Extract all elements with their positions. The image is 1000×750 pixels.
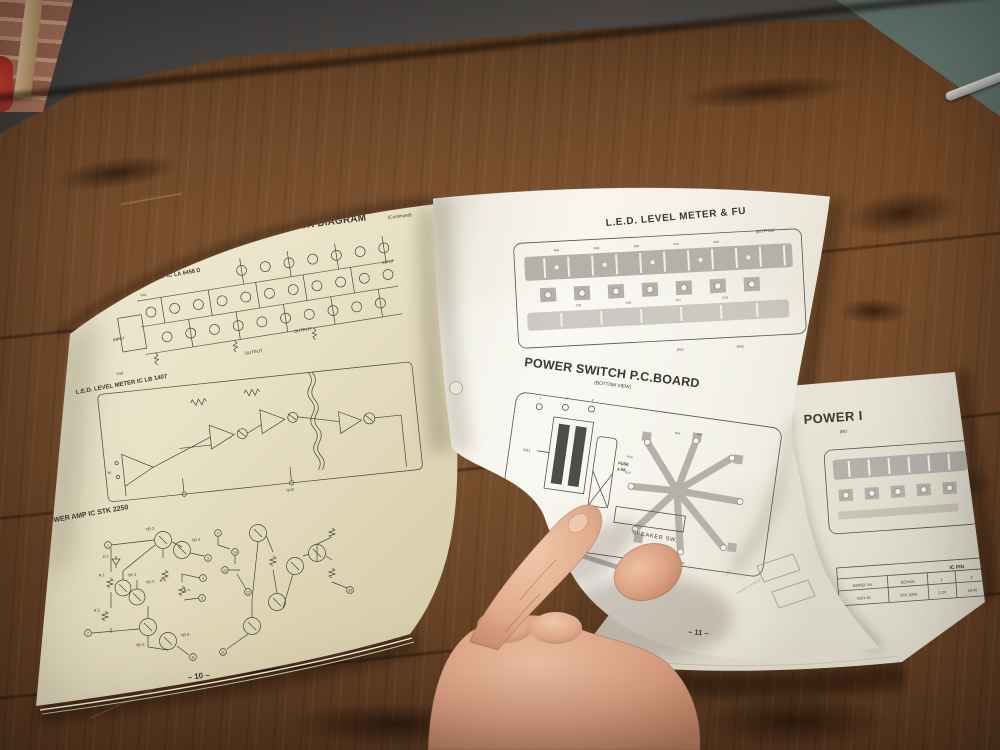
pcb-ref-label: R13	[625, 470, 631, 475]
pcb-ref-label: R05	[594, 246, 600, 250]
pin-label: 11	[221, 651, 225, 655]
pcb-ref-label: R06	[634, 244, 640, 248]
table-header-cell: 2	[970, 576, 972, 580]
pcb-ref-label: D11	[675, 298, 681, 302]
left-page: IC EQUIVALENT CIRCUIT & BLOCK DIAGRAM (C…	[36, 204, 457, 714]
pcb-ref-label: D09	[626, 301, 632, 305]
pin-label: 4	[202, 577, 204, 581]
pin-label: 3	[207, 557, 209, 561]
pin-label: 5	[201, 597, 203, 601]
pin-label: 7	[87, 632, 89, 636]
table-header-cell: 1	[940, 578, 942, 582]
pin-label: 1	[107, 544, 109, 548]
pin-label: 12	[246, 591, 250, 595]
pcb-ref-label: R03	[697, 432, 703, 437]
pcb-ref-label: R13	[713, 240, 719, 244]
pin-label: 10	[348, 589, 352, 593]
punch-hole	[450, 382, 463, 395]
knuckle	[530, 612, 582, 644]
table-title: IC PIN	[949, 564, 964, 571]
pcb-ref-label: D05	[576, 303, 582, 307]
book-and-hand: IC EQUIVALENT CIRCUIT & BLOCK DIAGRAM (C…	[0, 0, 1000, 750]
pin-label: 13	[223, 569, 227, 573]
pcb-ref-label: R04	[554, 248, 560, 252]
pcb-ref-label: R04	[675, 431, 681, 436]
left-page-paper	[36, 204, 457, 706]
pcb-ref-label: R12	[627, 454, 633, 459]
pcb-ref-label: D13	[722, 295, 728, 299]
pin-label: 2	[217, 532, 219, 536]
table-cell: 28.4V	[967, 588, 978, 593]
pin-label: 6	[192, 656, 194, 660]
under-page-title-sub: (BO	[840, 428, 849, 434]
photo-scene: IC EQUIVALENT CIRCUIT & BLOCK DIAGRAM (C…	[0, 0, 1000, 750]
pin-label: 14	[233, 551, 237, 555]
pcb-ref-label: R10	[674, 242, 680, 246]
table-cell: 1.2V	[939, 590, 948, 595]
jp-label: JP02	[676, 348, 684, 352]
jp-label: JP03	[736, 345, 744, 349]
